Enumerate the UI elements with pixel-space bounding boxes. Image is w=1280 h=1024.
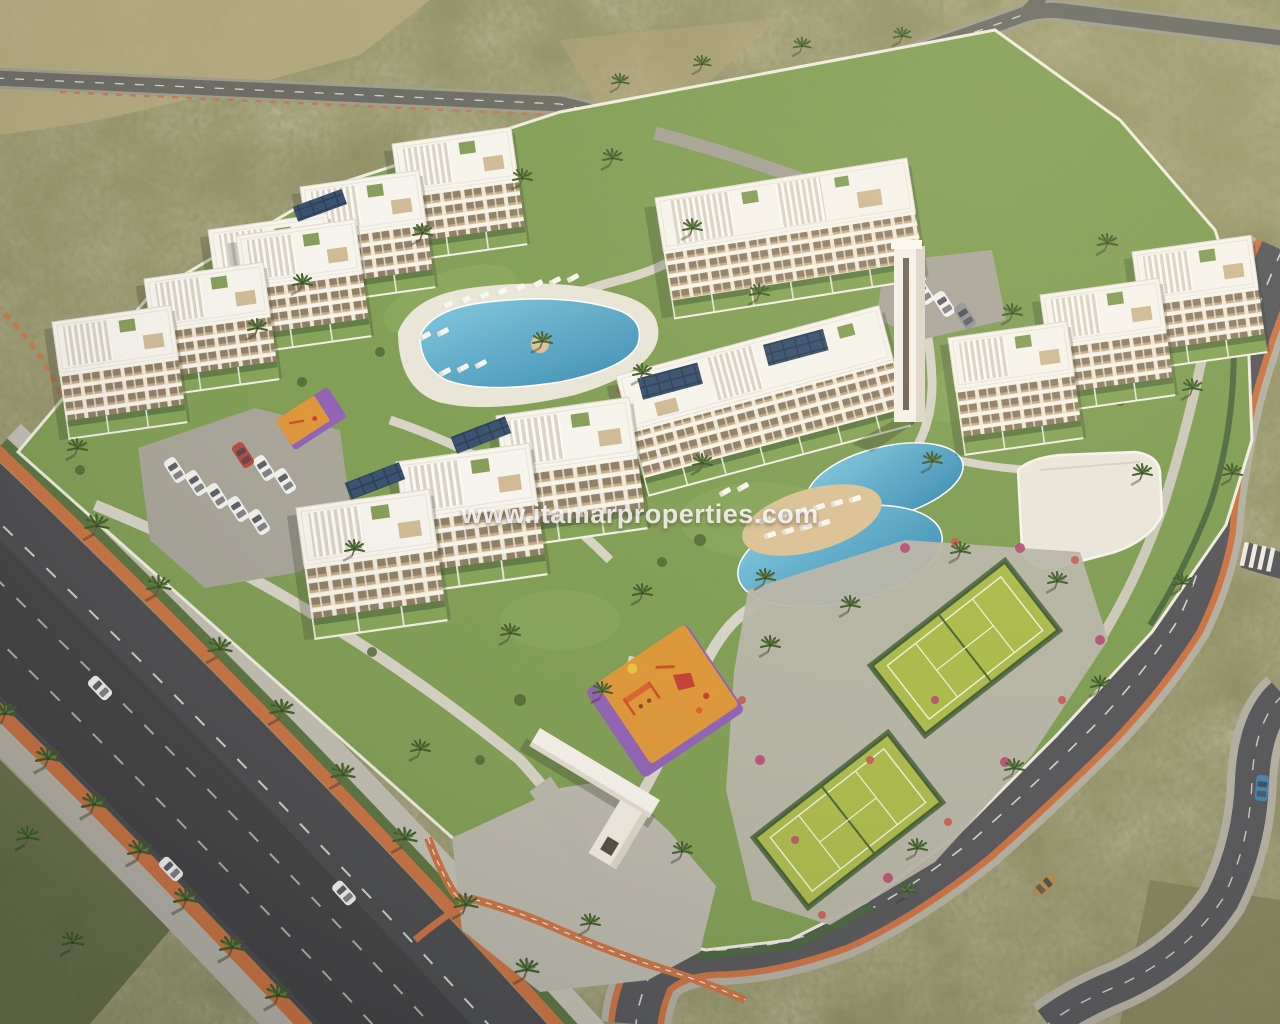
render-scene [0,0,1280,1024]
aerial-property-render: www.itamarproperties.com [0,0,1280,1024]
sunset-lighting [0,0,1280,1024]
